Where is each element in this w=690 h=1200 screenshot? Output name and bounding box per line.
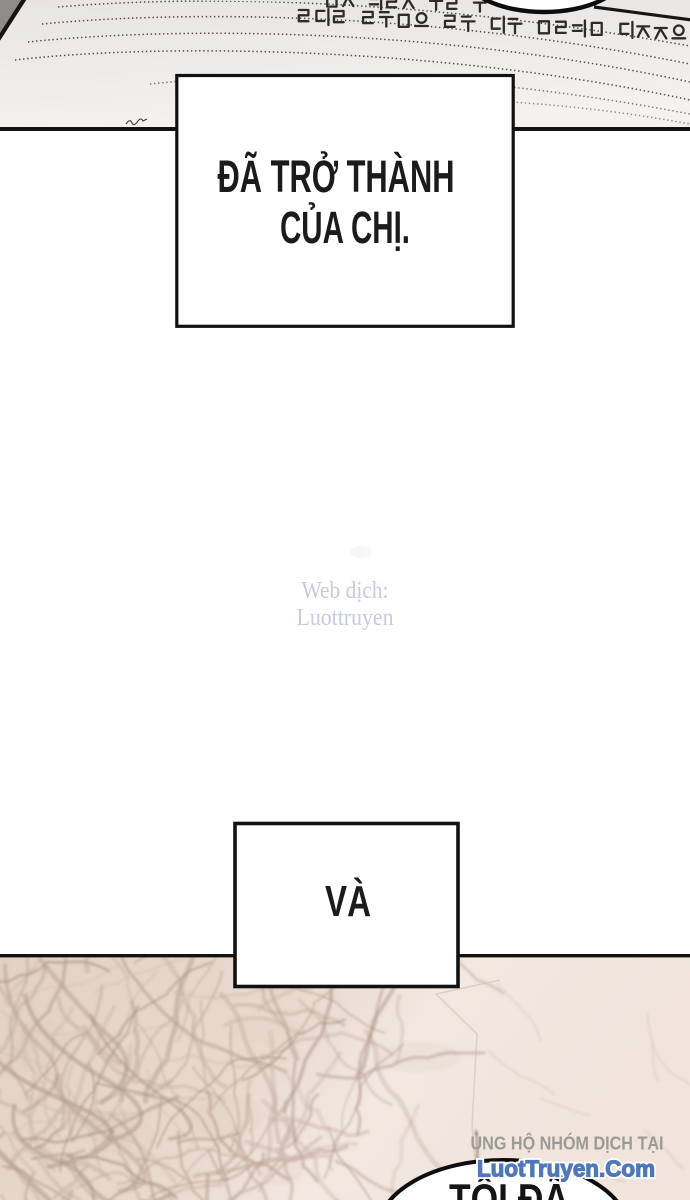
- svg-text:CỦA CHỊ.: CỦA CHỊ.: [280, 202, 410, 253]
- svg-text:Luottruyen: Luottruyen: [297, 605, 394, 631]
- svg-text:ỦNG HỘ NHÓM DỊCH TẠI: ỦNG HỘ NHÓM DỊCH TẠI: [471, 1133, 664, 1154]
- svg-text:VÀ: VÀ: [325, 876, 371, 926]
- svg-text:LuotTruyen.Com: LuotTruyen.Com: [477, 1156, 655, 1182]
- svg-text:Web dịch:: Web dịch:: [302, 578, 389, 604]
- svg-text:ĐÃ TRỞ THÀNH: ĐÃ TRỞ THÀNH: [218, 151, 455, 202]
